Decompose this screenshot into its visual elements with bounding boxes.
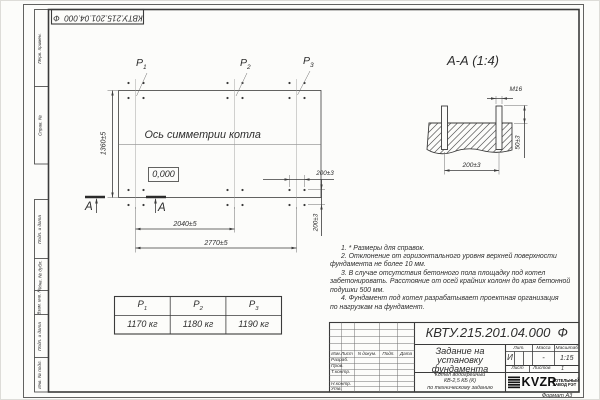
scale-header: Масштаб [555, 346, 580, 351]
logo-text: KVZR [522, 375, 557, 389]
drawing-sheet: КВТУ.215.201.04.000 Ф Перв. примен. Спра… [0, 0, 600, 400]
load-point-label-p2: P2 [240, 58, 251, 71]
dim-bolt-y-label: 200±3 [312, 205, 321, 239]
sheets-label: Листов [533, 366, 550, 371]
title-block-doc-number: КВТУ.215.201.04.000 Ф [415, 326, 580, 341]
margin-label-inv-dubl: Инв. № дубл. [37, 259, 46, 291]
dim-bolt-group [263, 175, 334, 236]
p3-sub: 3 [310, 62, 314, 69]
anchor-bolt-dots [127, 82, 305, 206]
dim-protrusion-label: 50±3 [514, 127, 523, 157]
load-value-p3: 1190 кг [226, 319, 282, 329]
technical-notes: 1. * Размеры для справок. 2. Отклонение … [330, 245, 582, 313]
dim-thread-m16 [487, 96, 513, 104]
sign-row-utv: Утв. [331, 387, 342, 392]
logo-coil-icon [508, 377, 520, 389]
plan-view [85, 71, 334, 253]
load-point-leaders [137, 71, 311, 96]
sign-row-razrab: Разраб. [331, 358, 348, 363]
scale-value: 1:15 [555, 355, 580, 363]
margin-label-podp-data-2: Подп. и дата [37, 315, 46, 358]
sign-row-tkontr: Т.контр. [331, 370, 350, 375]
th-p3-sub: 3 [255, 305, 258, 311]
load-table-header-p3: P3 [226, 300, 282, 312]
load-point-label-p3: P3 [303, 56, 314, 69]
sign-col-izm-list: Изм.Лист [330, 351, 355, 356]
load-point-label-p1: P1 [136, 58, 147, 71]
format-note: Формат А3 [527, 393, 587, 399]
dim-total-width-label: 2770±5 [195, 240, 237, 248]
dim-height-label: 1360±5 [101, 122, 110, 166]
th-p1-sub: 1 [144, 305, 147, 311]
note-line: 4. Фундамент под котел разрабатывает про… [330, 295, 582, 303]
logo-sub-line2: ЗАВОД РЭТ [553, 383, 577, 388]
top-stamp-doc-number: КВТУ.215.201.04.000 Ф [52, 10, 144, 25]
sheet-label: Лист [506, 366, 530, 371]
p2-base: P [240, 57, 247, 69]
p1-base: P [136, 57, 143, 69]
sign-row-prov: Пров. [331, 364, 344, 369]
thread-callout: М16 [510, 86, 523, 93]
section-cut-marks [85, 197, 166, 213]
margin-label-vzam-inv: Взам. инв. № [37, 291, 46, 315]
load-value-p2: 1180 кг [170, 319, 226, 329]
lit-header: Лит. [506, 346, 533, 351]
boiler-axis-label: Ось симметрии котла [145, 129, 261, 141]
mass-value: - [533, 354, 555, 362]
sign-col-data: Дата [398, 351, 415, 356]
p3-base: P [303, 55, 310, 67]
level-mark: 0,000 [149, 169, 179, 179]
sheets-value: 1 [561, 366, 564, 372]
product-line3: по техническому заданию [415, 386, 506, 392]
th-p2-sub: 2 [200, 305, 203, 311]
load-table-header-p1: P1 [115, 300, 171, 312]
load-table-header-p2: P2 [170, 300, 226, 312]
note-line: 1. * Размеры для справок. [330, 245, 582, 253]
margin-label-inv-podl: Инв. № подл. [37, 357, 46, 392]
margin-label-podp-data-1: Подп. и дата [37, 200, 46, 259]
anchor-stud-left [442, 106, 448, 150]
section-letter-left: А [85, 201, 93, 214]
sign-col-doc: N докум. [355, 351, 380, 356]
p1-sub: 1 [143, 64, 147, 71]
section-title: А-А (1:4) [447, 54, 499, 69]
lit-value: И [506, 354, 515, 363]
section-letter-right: А [158, 202, 166, 215]
note-line: подушки 500 мм. [330, 287, 582, 295]
note-line: фундамента не более 10 мм. [330, 261, 582, 269]
margin-label-perv-primen: Перв. примен. [37, 10, 46, 87]
dim-stud-spacing-label: 200±3 [453, 162, 490, 169]
margin-label-sprav-n: Справ. № [37, 86, 46, 164]
sign-col-podp: Подп. [380, 351, 398, 356]
dim-bolt-x-label: 200±3 [307, 170, 343, 177]
note-line: забетонировать. Расстояние от осей крайн… [330, 278, 582, 286]
p2-sub: 2 [247, 64, 251, 71]
mass-header: Масса [533, 346, 555, 351]
load-value-p1: 1170 кг [115, 319, 171, 329]
anchor-stud-right [496, 106, 502, 150]
dim-inner-width-label: 2040±5 [164, 221, 206, 229]
note-line: по нагрузкам на фундамент. [330, 304, 582, 312]
